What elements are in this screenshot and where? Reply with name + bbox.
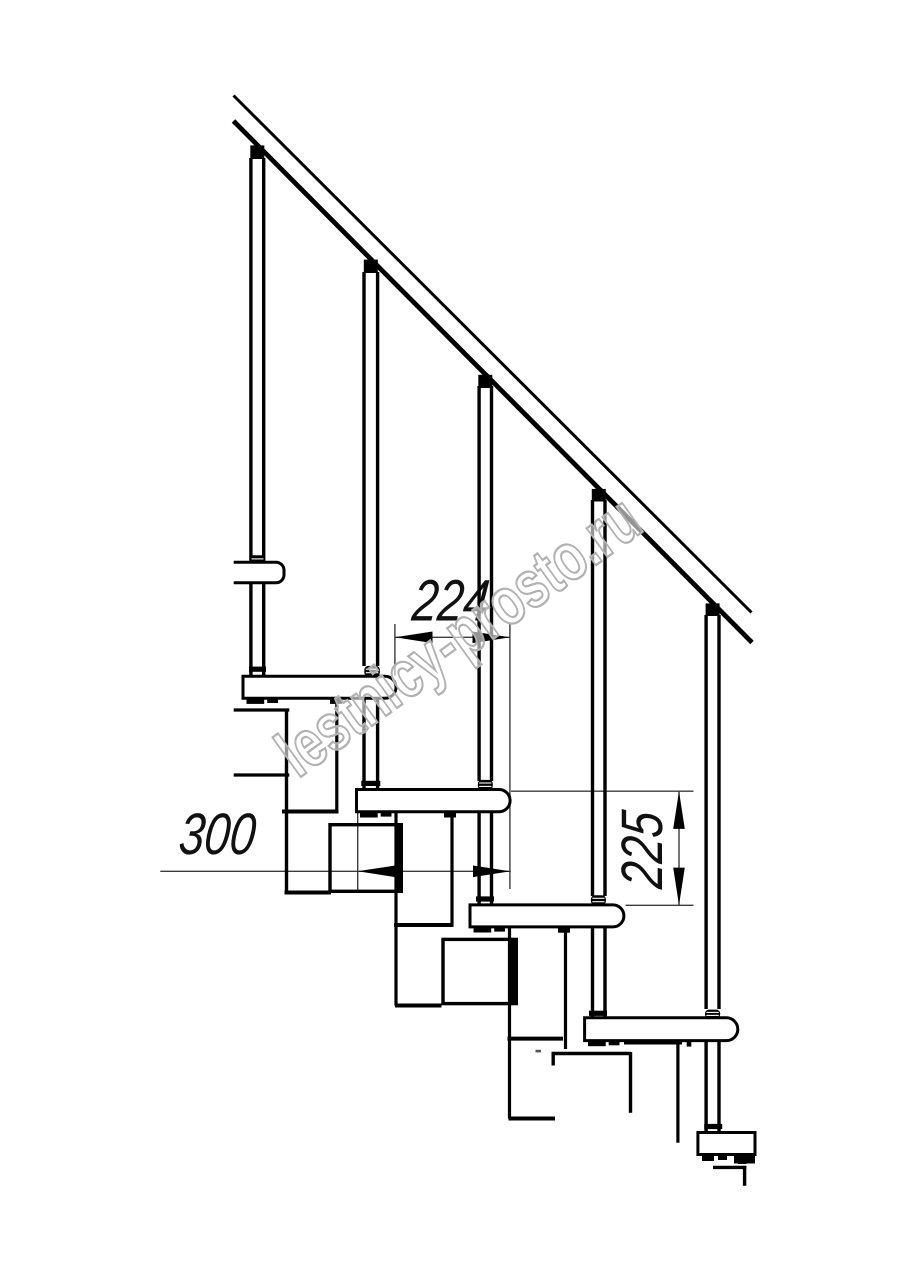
svg-text:225: 225 bbox=[610, 807, 676, 892]
svg-text:300: 300 bbox=[176, 802, 259, 868]
